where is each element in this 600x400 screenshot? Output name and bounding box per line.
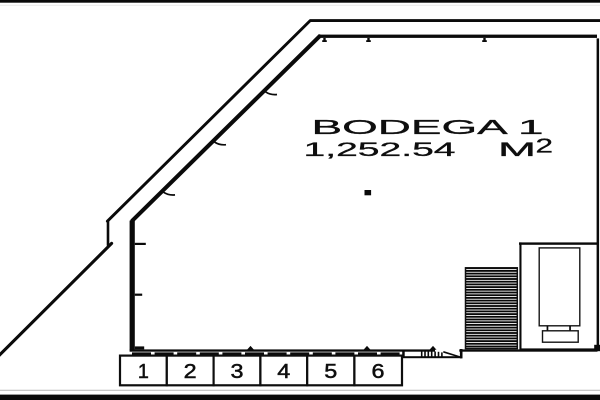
svg-text:5: 5 bbox=[324, 361, 337, 383]
svg-text:2: 2 bbox=[536, 135, 554, 157]
svg-text:M: M bbox=[498, 139, 536, 161]
svg-text:6: 6 bbox=[372, 361, 385, 383]
svg-text:BODEGA 1: BODEGA 1 bbox=[312, 116, 544, 139]
svg-text:1,252.54: 1,252.54 bbox=[304, 139, 456, 161]
svg-text:2: 2 bbox=[184, 361, 197, 383]
svg-text:1: 1 bbox=[138, 361, 149, 383]
svg-text:4: 4 bbox=[277, 361, 290, 383]
svg-text:3: 3 bbox=[231, 361, 244, 383]
